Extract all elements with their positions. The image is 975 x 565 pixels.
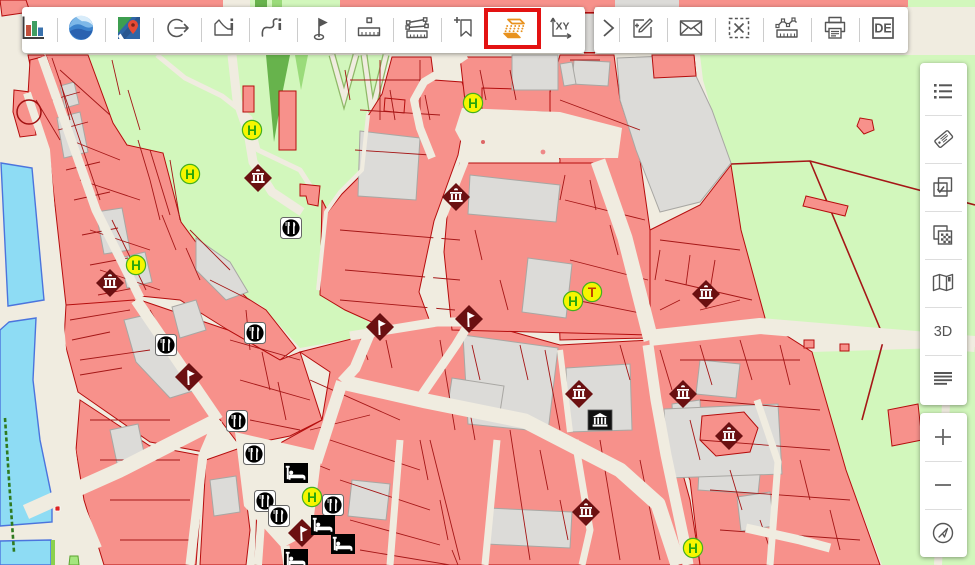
svg-text:H: H [131, 258, 141, 273]
svg-text:H: H [568, 294, 578, 309]
svg-text:XY: XY [556, 21, 570, 33]
svg-text:H: H [185, 167, 195, 182]
svg-text:H: H [247, 123, 257, 138]
svg-text:DE: DE [874, 22, 891, 36]
svg-text:H: H [468, 96, 478, 111]
svg-text:T: T [588, 285, 597, 300]
svg-text:H: H [307, 490, 317, 505]
svg-text:3D: 3D [934, 324, 953, 340]
svg-text:H: H [688, 541, 698, 556]
